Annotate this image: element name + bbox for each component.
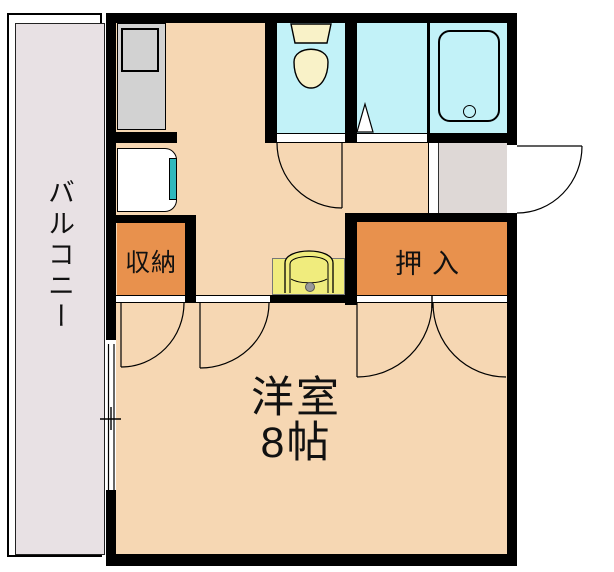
wall-behind-vanity [270,295,348,303]
wall-storage-right [185,215,196,303]
oshiire-label: 押入 [357,242,507,281]
oshiire-door-opening [357,295,507,303]
room-size: 8帖 [186,421,406,466]
wall-right-lower [507,213,517,566]
entrance-step [428,143,438,213]
wall-oshiire-top [345,213,517,222]
balcony-label: バルコニー [40,178,79,333]
wall-left-upper [106,13,116,340]
wall-kitchen-stub [106,132,177,143]
washing-machine-tap-icon [169,158,177,200]
wall-storage-top [106,215,196,223]
balcony-window-opening [106,340,116,490]
entrance-genkan [438,143,507,213]
wall-bottom [106,554,517,566]
washroom [357,23,427,133]
floor-plan: バルコニー 収納 押入 洋室 8帖 [0,0,614,572]
room-name: 洋室 [186,376,406,421]
western-room-label: 洋室 8帖 [186,376,406,465]
wall-washroom-bath [427,23,430,133]
washbasin-vanity [272,258,345,295]
washing-machine-icon [117,148,177,212]
wall-right-upper [507,13,517,145]
bathtub-drain-icon [463,105,476,118]
wall-top [106,13,517,23]
hall-door-opening [196,295,270,303]
toilet-room [277,23,345,133]
wall-toilet-left [265,23,277,143]
storage-door-opening [116,295,185,303]
entry-door-arc [517,146,582,213]
toilet-door-opening [277,133,345,143]
kitchen-sink-icon [121,28,159,72]
storage-label: 収納 [117,243,185,279]
wall-toilet-washroom [345,23,357,143]
entry-door-opening [507,145,517,213]
wall-oshiire-left [345,213,357,305]
washroom-door-opening [357,133,427,143]
